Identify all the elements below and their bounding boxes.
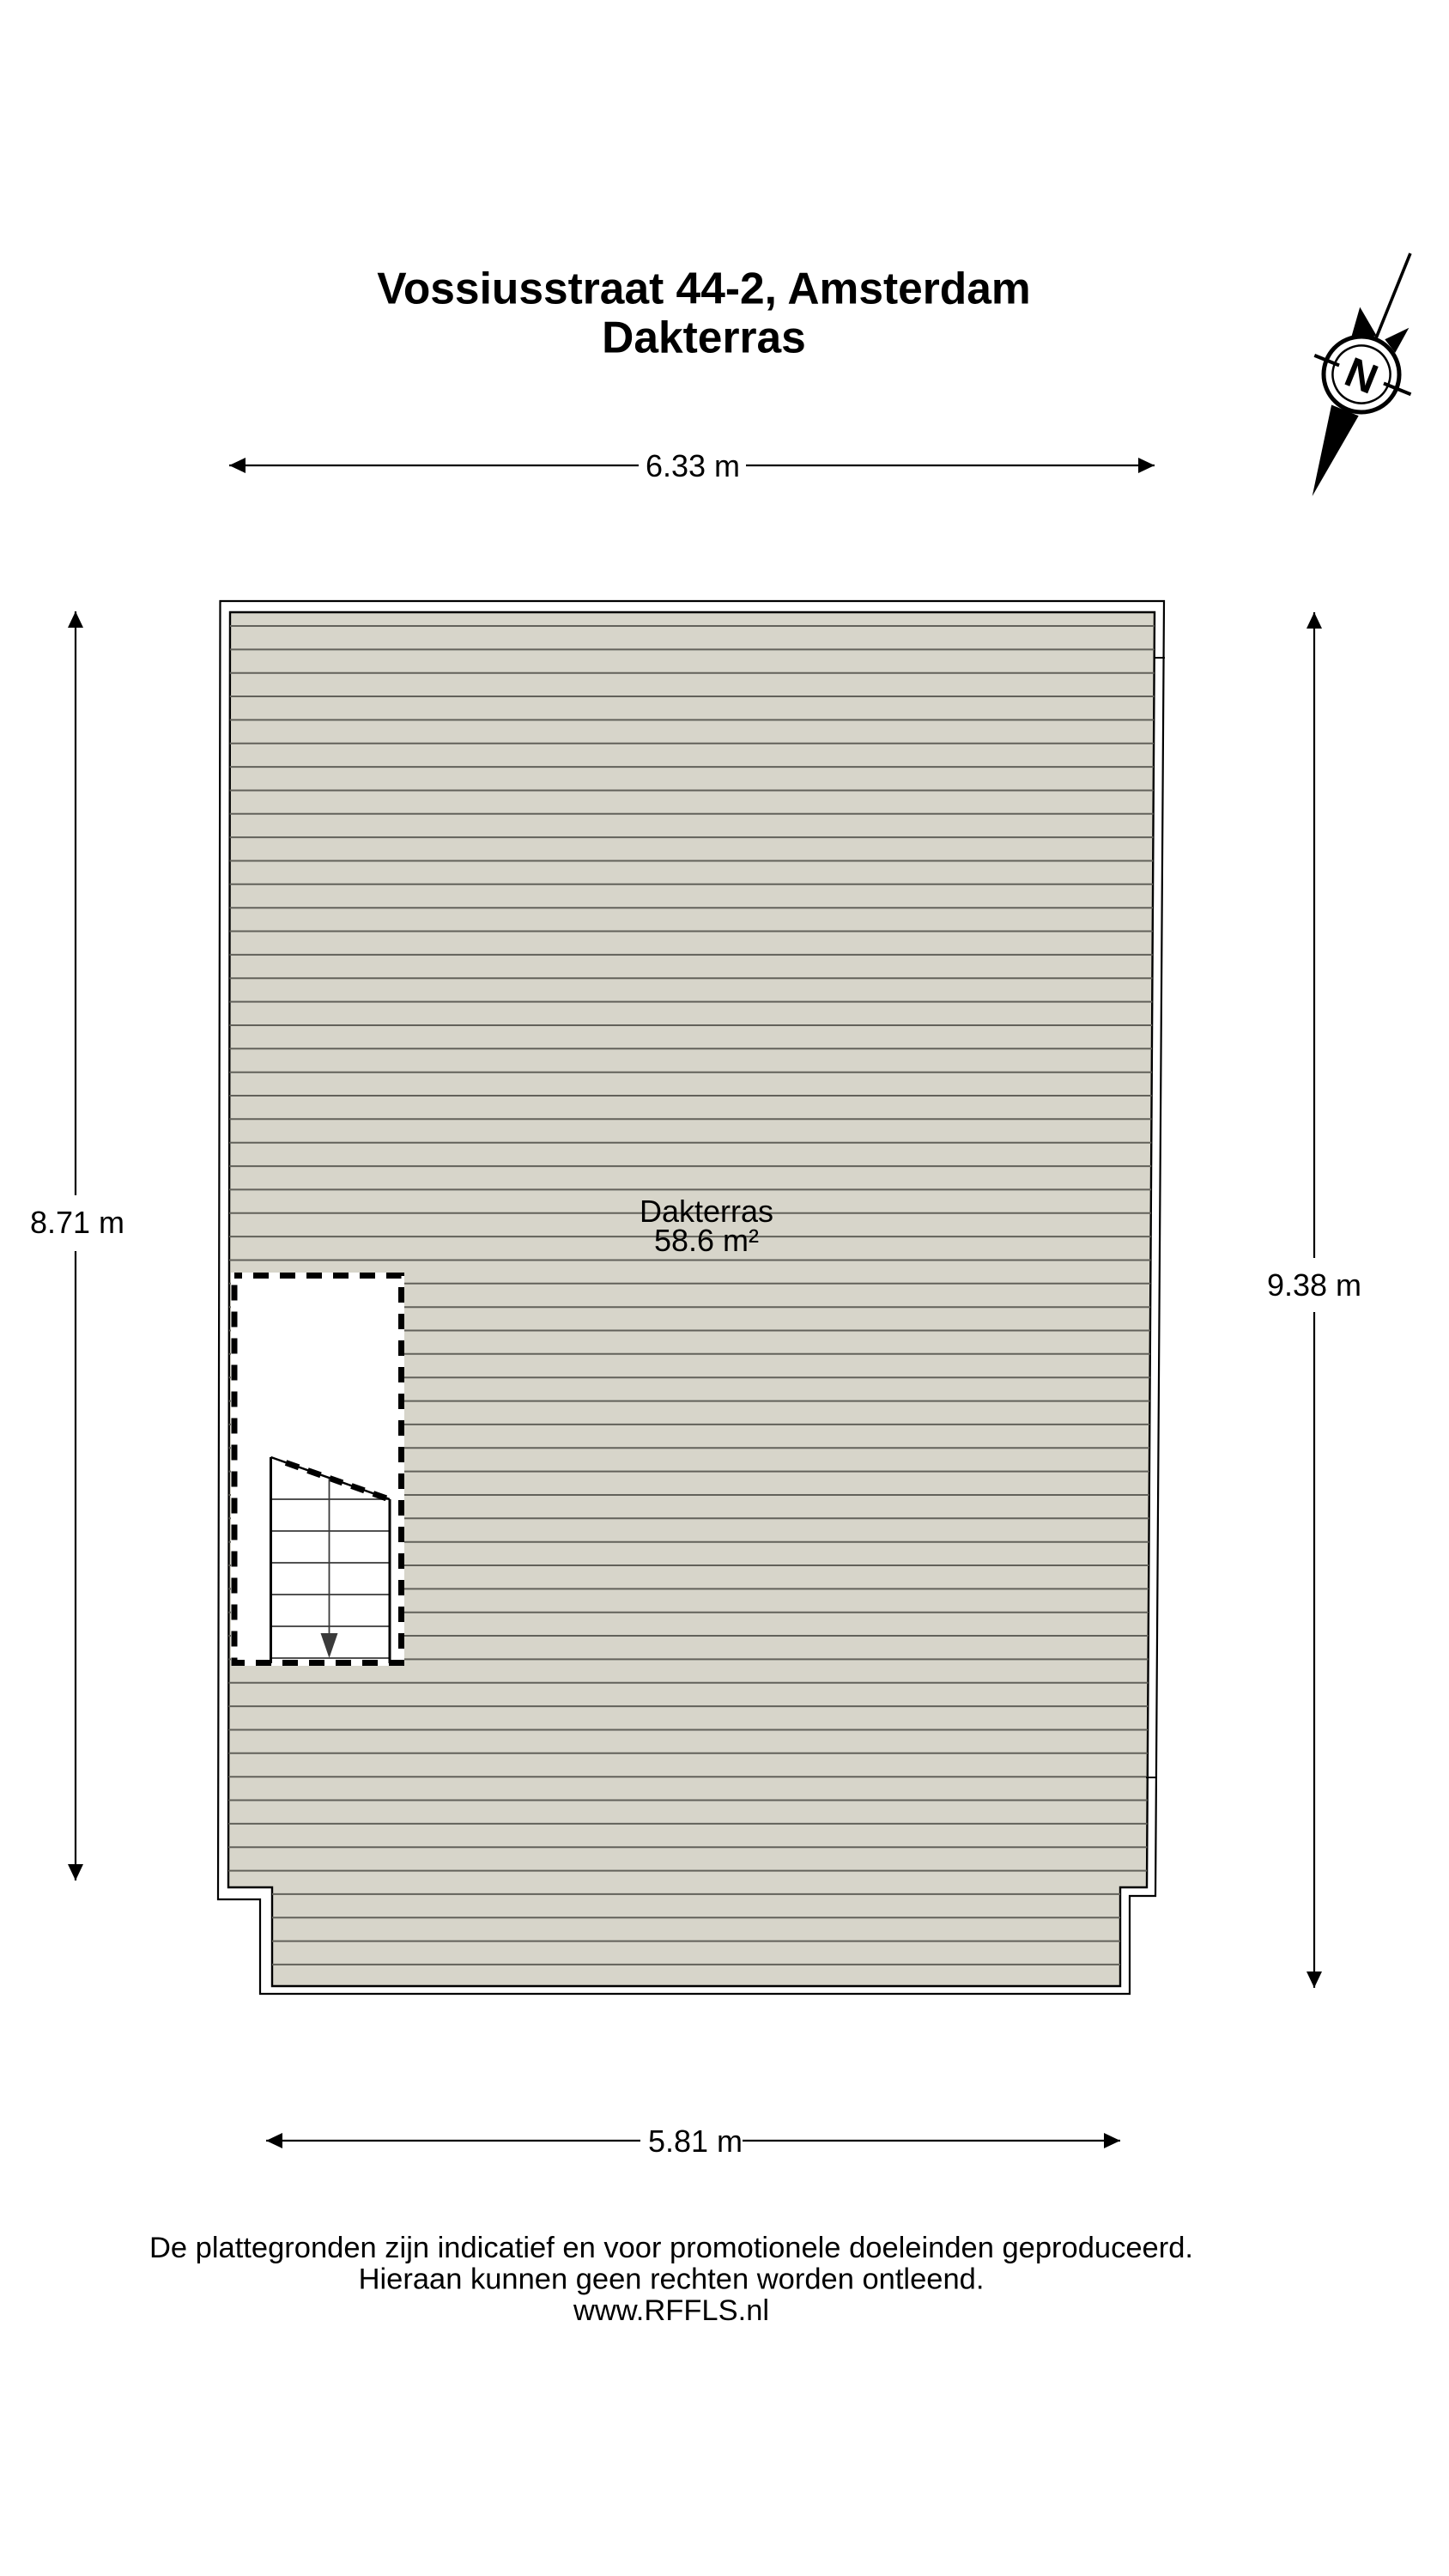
svg-text:5.81 m: 5.81 m (648, 2123, 743, 2159)
svg-text:58.6 m²: 58.6 m² (654, 1223, 759, 1258)
svg-text:Vossiusstraat 44-2, Amsterdam: Vossiusstraat 44-2, Amsterdam (377, 264, 1030, 313)
svg-text:6.33 m: 6.33 m (646, 448, 740, 483)
svg-text:Hieraan kunnen geen rechten wo: Hieraan kunnen geen rechten worden ontle… (359, 2263, 985, 2296)
svg-text:www.RFFLS.nl: www.RFFLS.nl (573, 2294, 769, 2327)
svg-text:De plattegronden zijn indicati: De plattegronden zijn indicatief en voor… (149, 2232, 1193, 2264)
svg-text:Dakterras: Dakterras (602, 313, 806, 362)
svg-text:9.38 m: 9.38 m (1267, 1267, 1361, 1303)
svg-text:8.71 m: 8.71 m (30, 1205, 124, 1240)
